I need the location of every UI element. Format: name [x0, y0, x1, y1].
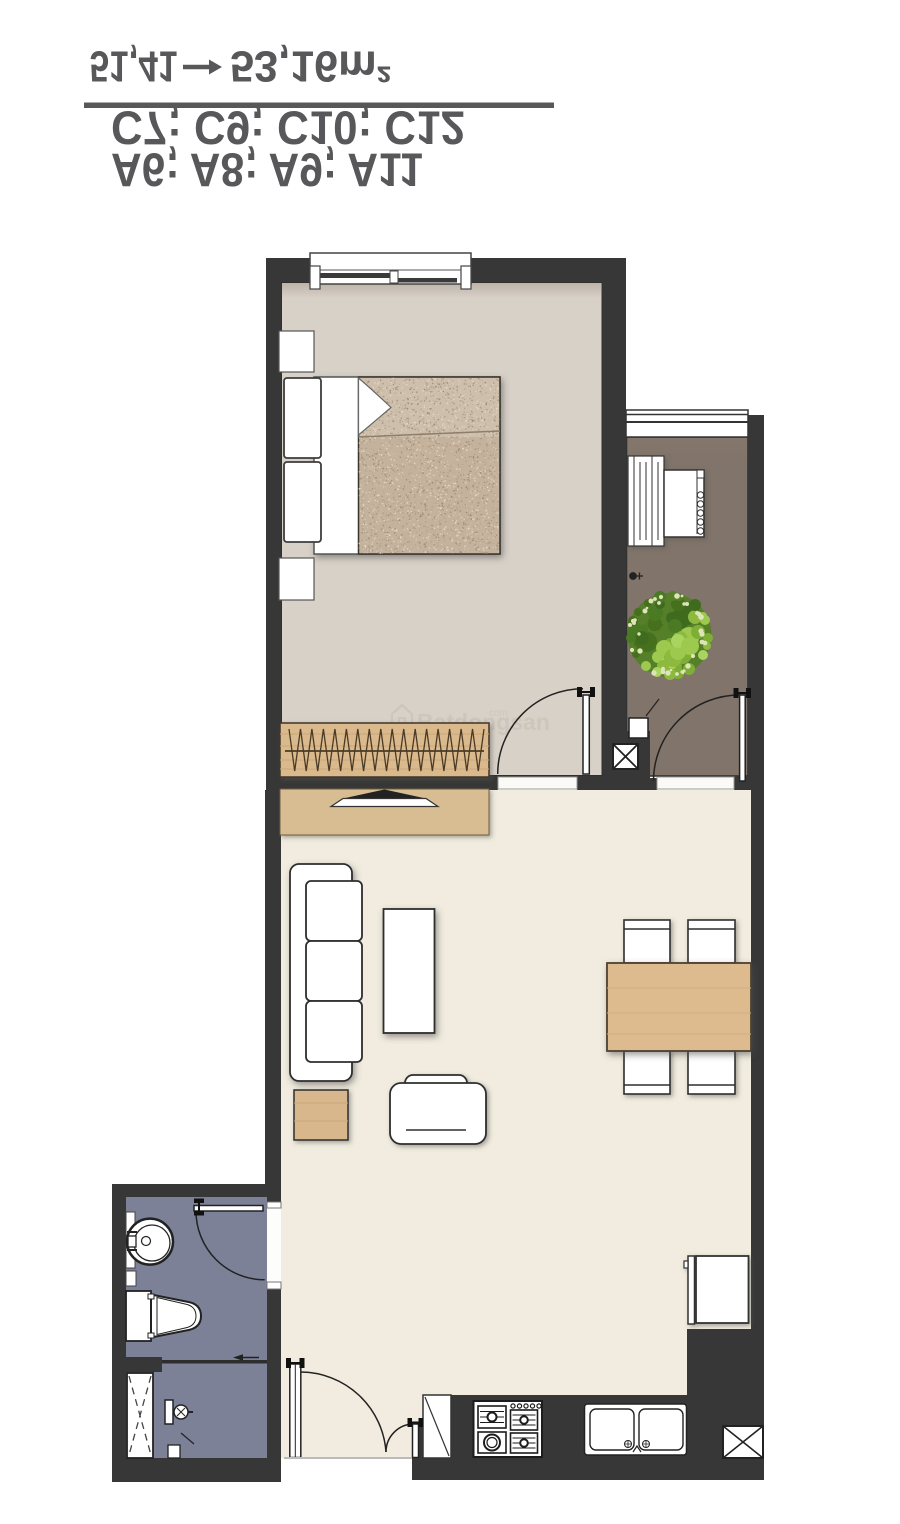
svg-text:51,41: 51,41	[90, 42, 178, 91]
svg-text:53,16m²: 53,16m²	[230, 42, 391, 91]
svg-text:com: com	[489, 708, 508, 719]
svg-text:A6; A8; A9; A11: A6; A8; A9; A11	[111, 143, 423, 196]
